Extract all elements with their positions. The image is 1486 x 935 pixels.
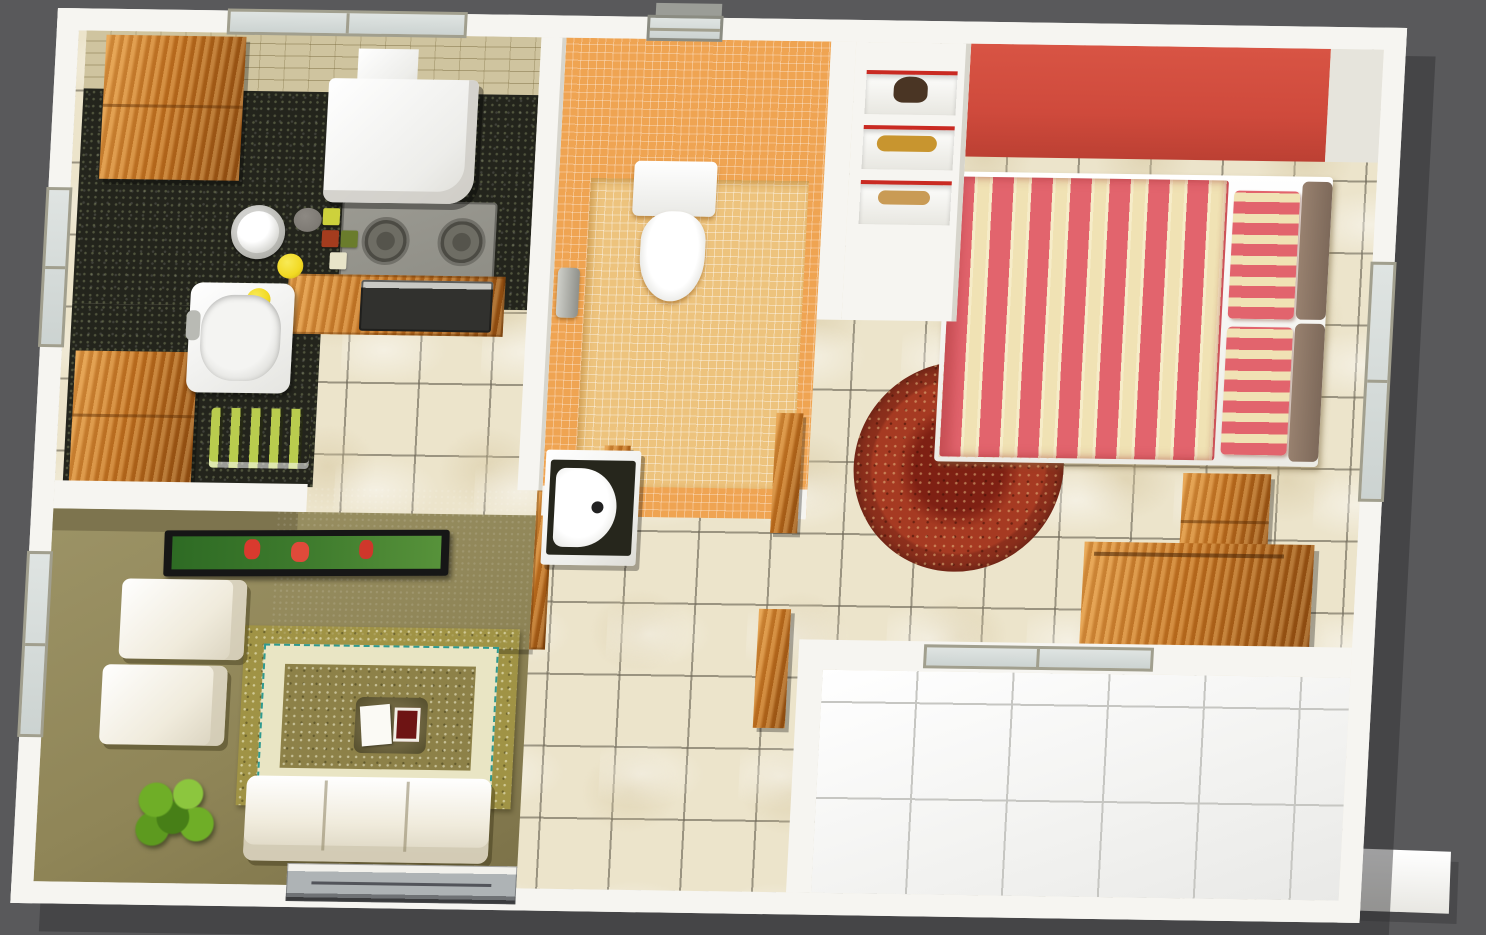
oven <box>359 280 494 333</box>
kitchen-top-window <box>227 9 468 39</box>
striped-duvet <box>939 176 1229 460</box>
shower-mixer <box>556 268 581 318</box>
leopard-figurine <box>876 135 937 152</box>
spice-jar <box>329 252 347 269</box>
striped-pillow <box>1228 191 1301 320</box>
sofa-three-seat <box>243 775 492 864</box>
spice-jar <box>340 230 358 247</box>
window-mullion <box>25 643 45 646</box>
armchair <box>118 578 247 660</box>
scene-background: { "scene": { "type": "3d-floorplan-rende… <box>0 0 1486 935</box>
apartment-floorplan <box>10 8 1407 923</box>
window-mullion <box>346 13 350 33</box>
sink-tap <box>185 310 201 340</box>
bedroom-red-accent-wall <box>965 44 1331 162</box>
magazine <box>360 704 392 747</box>
balcony <box>811 670 1351 901</box>
toilet-tank <box>632 161 718 217</box>
deer-figurine <box>878 190 931 205</box>
armchair <box>99 664 228 746</box>
wall-kitchen-living <box>53 480 307 512</box>
bathroom-vent-window <box>646 15 723 42</box>
elephant-figurine <box>893 76 928 103</box>
window-mullion <box>45 266 65 269</box>
window-mullion <box>1367 380 1387 383</box>
hall-door-post <box>753 609 791 728</box>
dish-rack <box>209 408 312 469</box>
red-tray <box>393 707 421 741</box>
soccer-player-red <box>244 539 261 559</box>
soccer-player-red <box>291 542 310 562</box>
bedroom-balcony-sliding-door <box>923 644 1154 671</box>
spice-jar <box>322 208 340 225</box>
soccer-player-red <box>359 540 374 559</box>
striped-pillow <box>1220 327 1293 456</box>
sliding-door-mullion <box>1036 649 1040 667</box>
bedroom-corner-wall <box>1325 49 1384 163</box>
spice-jar <box>321 230 339 247</box>
sink-basin <box>198 294 283 381</box>
potted-plant <box>123 769 228 858</box>
extractor-hood <box>323 78 480 204</box>
window-mullion <box>650 28 720 32</box>
